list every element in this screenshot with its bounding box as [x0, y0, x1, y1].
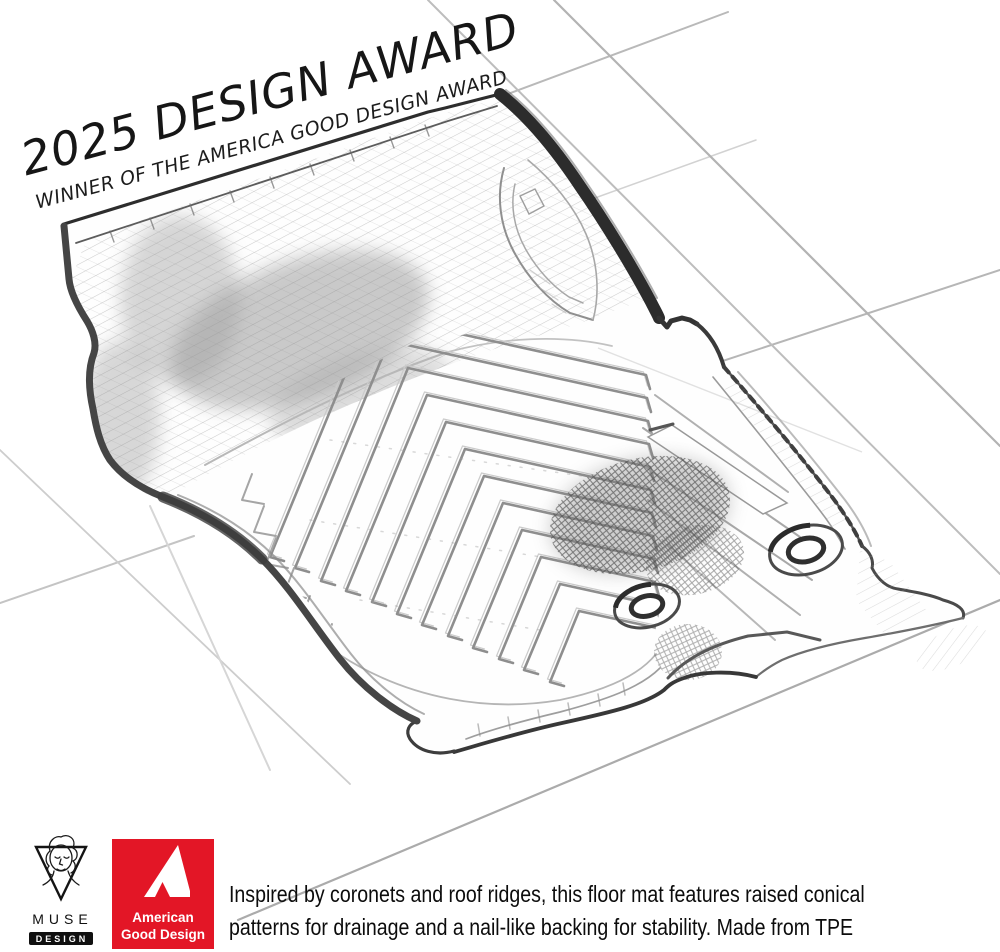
caption: Inspired by coronets and roof ridges, th…	[229, 878, 865, 944]
muse-tier-text: DESIGN	[29, 932, 94, 945]
muse-design-awards-logo: MUSE DESIGN AWARDS	[26, 833, 96, 952]
american-good-design-logo: American Good Design	[112, 839, 214, 949]
agd-line2: Good Design	[112, 927, 214, 942]
muse-brand-text: MUSE	[29, 911, 96, 927]
product-image: 2025 DESIGN AWARD WINNER OF THE AMERICA …	[0, 0, 1000, 952]
agd-a-icon	[112, 839, 214, 903]
caption-line-1: Inspired by coronets and roof ridges, th…	[229, 878, 865, 911]
muse-face-icon	[28, 833, 94, 905]
muse-triangle-icon	[36, 847, 86, 899]
agd-line1: American	[112, 910, 214, 925]
caption-line-2: patterns for drainage and a nail-like ba…	[229, 911, 865, 944]
